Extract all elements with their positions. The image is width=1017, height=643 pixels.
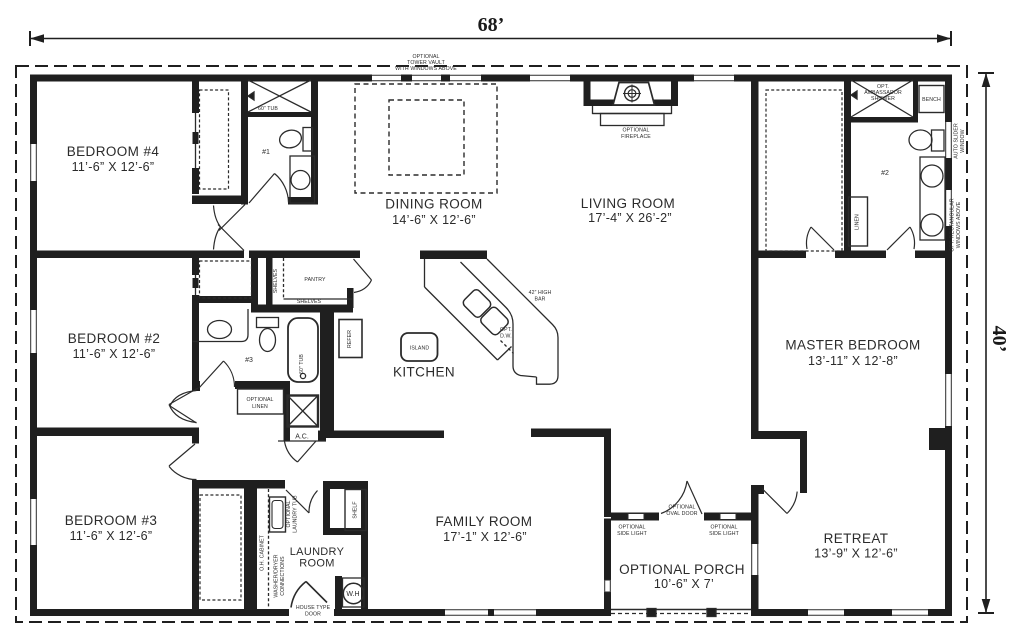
svg-text:ROOM: ROOM xyxy=(299,558,334,570)
svg-text:D.W.: D.W. xyxy=(500,334,512,340)
svg-text:HOUSE TYPE: HOUSE TYPE xyxy=(296,605,331,611)
svg-text:SHELVES: SHELVES xyxy=(273,268,279,293)
svg-text:OPTIONAL: OPTIONAL xyxy=(618,525,645,531)
svg-text:11’-6” X 12’-6”: 11’-6” X 12’-6” xyxy=(73,347,156,361)
svg-text:13’-9” X 12’-6”: 13’-9” X 12’-6” xyxy=(814,547,898,561)
svg-text:OPTIONAL: OPTIONAL xyxy=(668,505,695,511)
svg-text:W.H: W.H xyxy=(346,591,359,598)
svg-text:LIVING ROOM: LIVING ROOM xyxy=(581,196,675,211)
svg-text:RETREAT: RETREAT xyxy=(824,531,889,546)
svg-text:FAMILY ROOM: FAMILY ROOM xyxy=(436,514,533,529)
svg-text:11’-6” X 12’-6”: 11’-6” X 12’-6” xyxy=(72,160,155,174)
svg-text:O.H. CABINET: O.H. CABINET xyxy=(260,534,266,571)
svg-text:#3: #3 xyxy=(245,357,253,364)
svg-text:SHELF: SHELF xyxy=(353,501,359,518)
svg-text:68’: 68’ xyxy=(478,14,505,36)
svg-text:LAUNDRY: LAUNDRY xyxy=(290,546,345,558)
svg-text:60” TUB: 60” TUB xyxy=(299,354,305,374)
svg-text:A.C.: A.C. xyxy=(295,434,309,441)
svg-text:10’-6” X 7’: 10’-6” X 7’ xyxy=(654,577,714,591)
svg-text:DOOR: DOOR xyxy=(305,612,321,618)
svg-text:FIREPLACE: FIREPLACE xyxy=(621,134,651,140)
svg-text:OPTIONAL: OPTIONAL xyxy=(246,397,273,403)
svg-text:OPT. RECTANGULAR: OPT. RECTANGULAR xyxy=(950,198,956,252)
svg-text:LAUNDRY TUB: LAUNDRY TUB xyxy=(293,495,299,533)
svg-text:13’-11” X 12’-8”: 13’-11” X 12’-8” xyxy=(808,354,898,368)
svg-text:BEDROOM #3: BEDROOM #3 xyxy=(65,513,158,528)
svg-text:11’-6” X 12’-6”: 11’-6” X 12’-6” xyxy=(70,529,153,543)
svg-text:SHELVES: SHELVES xyxy=(297,299,322,305)
svg-text:17’-1” X 12’-6”: 17’-1” X 12’-6” xyxy=(443,530,527,544)
svg-text:ISLAND: ISLAND xyxy=(410,346,429,352)
svg-text:SIDE LIGHT: SIDE LIGHT xyxy=(709,531,740,537)
svg-text:OVAL DOOR: OVAL DOOR xyxy=(666,511,697,517)
svg-text:LINEN: LINEN xyxy=(252,404,268,410)
svg-text:42” HIGH: 42” HIGH xyxy=(529,290,552,296)
svg-text:PANTRY: PANTRY xyxy=(304,277,326,283)
svg-text:#2: #2 xyxy=(881,170,889,177)
svg-text:OPTIONAL: OPTIONAL xyxy=(622,128,649,134)
svg-text:SHOWER: SHOWER xyxy=(871,96,895,102)
svg-text:OPTIONAL: OPTIONAL xyxy=(286,500,292,527)
svg-text:CONNECTIONS: CONNECTIONS xyxy=(280,556,286,596)
svg-text:14’-6” X 12’-6”: 14’-6” X 12’-6” xyxy=(392,213,476,227)
svg-text:LINEN: LINEN xyxy=(855,214,861,230)
svg-text:WASHER/DRYER: WASHER/DRYER xyxy=(274,554,280,597)
svg-text:40’: 40’ xyxy=(988,326,1010,353)
svg-text:DINING ROOM: DINING ROOM xyxy=(385,197,482,212)
svg-text:OPTIONAL PORCH: OPTIONAL PORCH xyxy=(619,562,745,577)
svg-text:60” TUB: 60” TUB xyxy=(258,106,278,112)
svg-text:BAR: BAR xyxy=(535,297,546,303)
svg-text:WINDOW: WINDOW xyxy=(960,129,966,152)
svg-text:17’-4” X 26’-2”: 17’-4” X 26’-2” xyxy=(588,211,672,225)
svg-text:MASTER BEDROOM: MASTER BEDROOM xyxy=(785,338,920,353)
svg-text:SIDE LIGHT: SIDE LIGHT xyxy=(617,531,648,537)
svg-text:WITH WINDOWS ABOVE: WITH WINDOWS ABOVE xyxy=(395,66,457,72)
svg-text:OPT.: OPT. xyxy=(500,327,512,333)
svg-text:REFER: REFER xyxy=(347,330,353,348)
svg-text:WINDOWS ABOVE: WINDOWS ABOVE xyxy=(956,201,962,248)
svg-text:BENCH: BENCH xyxy=(922,97,941,103)
svg-text:BEDROOM #2: BEDROOM #2 xyxy=(68,331,161,346)
svg-text:KITCHEN: KITCHEN xyxy=(393,365,455,380)
svg-text:AUTO SLIDER: AUTO SLIDER xyxy=(954,123,960,159)
svg-text:BEDROOM #4: BEDROOM #4 xyxy=(67,144,160,159)
svg-text:OPTIONAL: OPTIONAL xyxy=(710,525,737,531)
svg-text:#1: #1 xyxy=(262,149,270,156)
